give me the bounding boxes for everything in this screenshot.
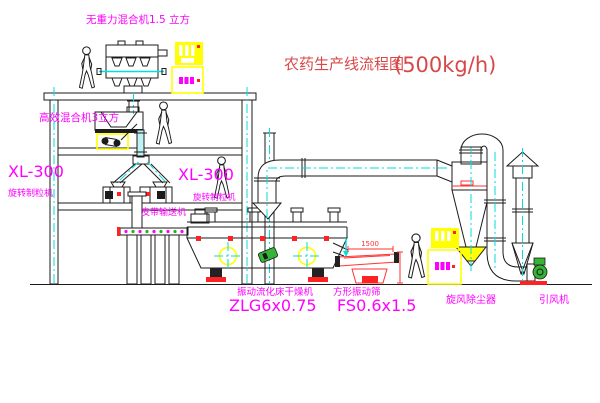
diagram-title: 农药生产线流程图 [284, 55, 404, 73]
gravity-free-mixer [97, 41, 167, 114]
exhaust-stack [507, 148, 538, 281]
process-flow-diagram: 农药生产线流程图 (500kg/h) 无重力混合机1.5 立方 高效混合机3立方… [0, 0, 600, 403]
diagram-svg: 农药生产线流程图 (500kg/h) 无重力混合机1.5 立方 高效混合机3立方… [0, 0, 600, 403]
label-belt-conveyor: 皮带输送机 [141, 206, 186, 218]
person-figure [409, 234, 425, 278]
control-cabinet-top [172, 42, 203, 93]
fan-base [520, 281, 547, 285]
control-cabinet-ground [428, 228, 461, 284]
label-high-efficiency-mixer: 高效混合机3立方 [39, 111, 119, 124]
mixer-discharge-pipe [137, 130, 144, 157]
label-granulator-left-model: XL-300 [8, 162, 64, 181]
exhaust-duct [253, 158, 452, 219]
label-cyclone: 旋风除尘器 [446, 293, 496, 306]
label-granulator-right-model: XL-300 [178, 165, 234, 184]
indicator-light [197, 45, 200, 48]
vibration-motor [258, 247, 278, 263]
cyclone-dust-collector [452, 143, 490, 272]
floor-slab-middle [58, 148, 242, 155]
granulator-feed-chutes [113, 156, 170, 183]
label-gravity-free-mixer: 无重力混合机1.5 立方 [86, 13, 190, 26]
label-screen-model: FS0.6x1.5 [337, 296, 416, 315]
floor-slab-top [44, 93, 256, 100]
label-fluid-bed-model: ZLG6x0.75 [229, 296, 317, 315]
cabinet-indicator-marks [179, 77, 194, 84]
fluid-bed-leg-left [210, 268, 222, 277]
fluid-bed-leg-right [312, 268, 324, 277]
dimension-1500: 1500 [361, 240, 379, 248]
label-granulator-right-name: 旋转制粒机 [193, 192, 236, 203]
label-fan: 引风机 [539, 293, 569, 306]
granulator-left [103, 182, 130, 203]
cyclone-inlet-transition [437, 160, 452, 182]
indicator-light [453, 231, 456, 234]
label-granulator-left-name: 旋转制粒机 [8, 187, 53, 199]
person-figure [156, 102, 171, 144]
cabinet-indicator-marks [435, 262, 450, 270]
person-figure [79, 47, 94, 88]
diagram-title-capacity: (500kg/h) [394, 53, 496, 77]
belt-idler-dots [124, 230, 183, 233]
